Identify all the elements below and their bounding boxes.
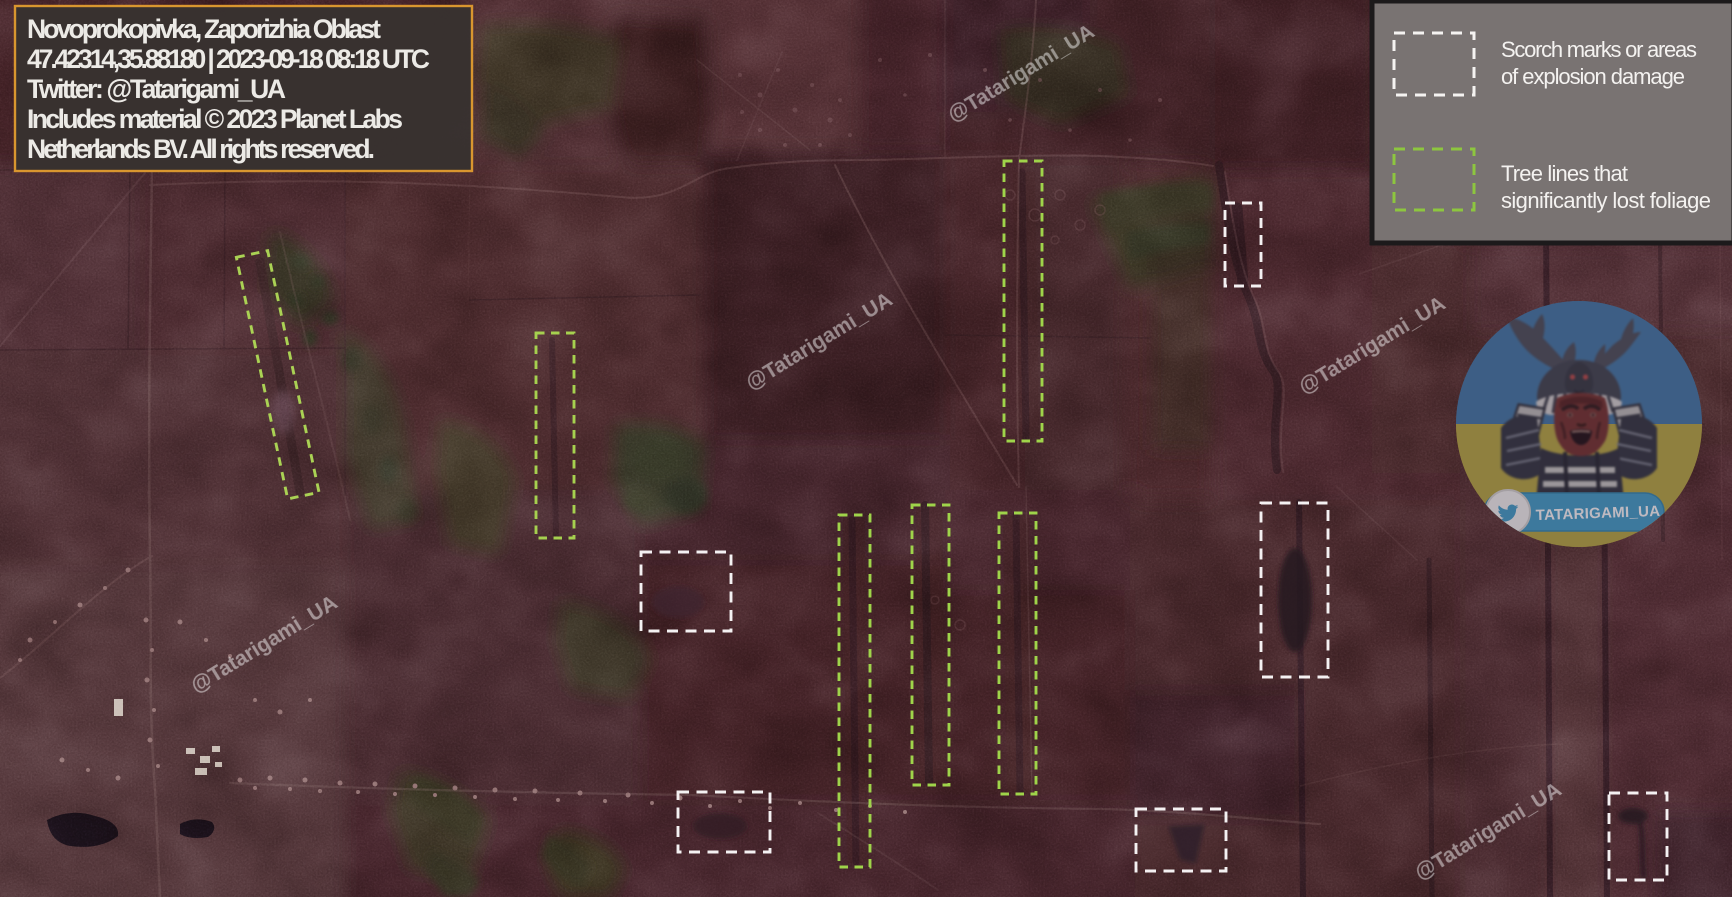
svg-text:Scorch marks or areas: Scorch marks or areas	[1501, 37, 1697, 62]
svg-text:47.42314,35.88180 | 2023-09-1: 47.42314,35.88180 | 2023-09-18 08:18 UTC	[27, 44, 430, 74]
svg-text:significantly lost foliage: significantly lost foliage	[1501, 188, 1711, 213]
svg-text:of explosion damage: of explosion damage	[1501, 64, 1685, 89]
svg-text:Twitter: @Tatarigami_UA: Twitter: @Tatarigami_UA	[27, 74, 286, 104]
svg-text:Netherlands BV. All rights res: Netherlands BV. All rights reserved.	[27, 134, 375, 164]
svg-text:Tree lines that: Tree lines that	[1501, 161, 1628, 186]
svg-text:Novoprokopivka, Zaporizhia Obl: Novoprokopivka, Zaporizhia Oblast	[27, 14, 381, 44]
svg-text:Includes material © 2023 Plane: Includes material © 2023 Planet Labs	[27, 104, 403, 134]
